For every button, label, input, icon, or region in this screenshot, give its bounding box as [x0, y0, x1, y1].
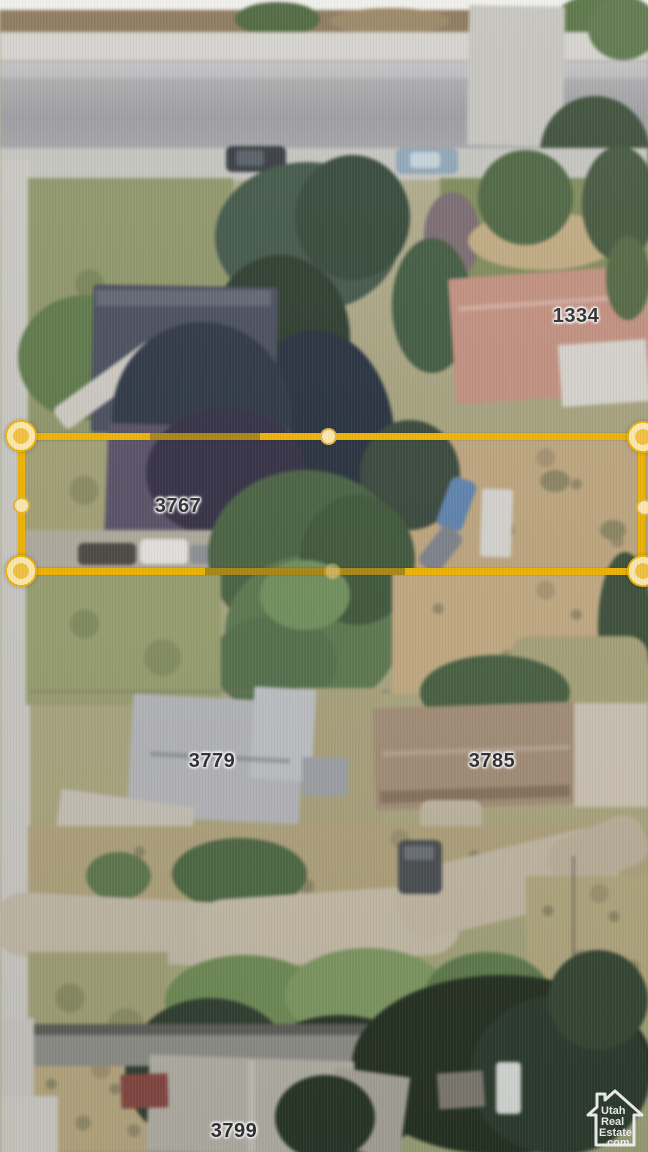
patio-1334	[558, 339, 648, 407]
road-corner-southwest	[0, 1096, 58, 1152]
tree-canopy	[606, 236, 648, 320]
parked-car-dark-roof	[236, 150, 264, 166]
parked-car	[78, 543, 136, 565]
aerial-map: 1334 3767 3779 3785 3799 Utah Real Estat…	[0, 0, 648, 1152]
parcel-label-3779: 3779	[189, 751, 236, 771]
parcel-label-3767: 3767	[155, 496, 202, 516]
boundary-midpoint-handle-s[interactable]	[324, 563, 341, 580]
boundary-midpoint-handle-e[interactable]	[636, 499, 648, 516]
boundary-top-shade	[150, 433, 260, 440]
bush	[86, 852, 151, 900]
tree-canopy	[295, 155, 410, 280]
parcel-label-3799: 3799	[211, 1121, 258, 1141]
shed-3779	[302, 757, 348, 796]
trailer-white	[480, 488, 513, 557]
tree-canopy-dark	[275, 1075, 375, 1152]
parcel-label-3785: 3785	[469, 751, 516, 771]
parked-car-blue-roof	[410, 152, 440, 168]
boundary-midpoint-handle-n[interactable]	[320, 428, 337, 445]
shed-red	[120, 1073, 168, 1109]
house-roof-highlight	[96, 290, 271, 306]
utahrealestate-watermark: Utah Real Estate .com	[584, 1088, 644, 1150]
parked-car-white	[140, 539, 188, 564]
boundary-vertex-handle-nw[interactable]	[5, 420, 37, 452]
watermark-line-4: .com	[604, 1137, 630, 1149]
lawn-mid-west	[26, 570, 221, 705]
bush	[235, 2, 320, 36]
boundary-bottom-shade	[205, 568, 405, 575]
van-white	[496, 1062, 521, 1114]
concrete-pad-3785	[574, 703, 648, 807]
tree-canopy-dark	[548, 950, 648, 1050]
van-windshield	[404, 846, 434, 860]
satellite-imagery	[0, 0, 648, 1152]
carport-roof-edge	[34, 1024, 399, 1035]
dirt-spot	[600, 520, 626, 540]
tree-canopy	[478, 150, 573, 245]
parcel-label-1334: 1334	[553, 306, 600, 326]
dirt-patch	[330, 8, 450, 34]
dirt-spot	[540, 470, 570, 492]
boundary-midpoint-handle-w[interactable]	[13, 497, 30, 514]
boundary-vertex-handle-sw[interactable]	[5, 555, 37, 587]
shed-gray	[437, 1070, 485, 1109]
